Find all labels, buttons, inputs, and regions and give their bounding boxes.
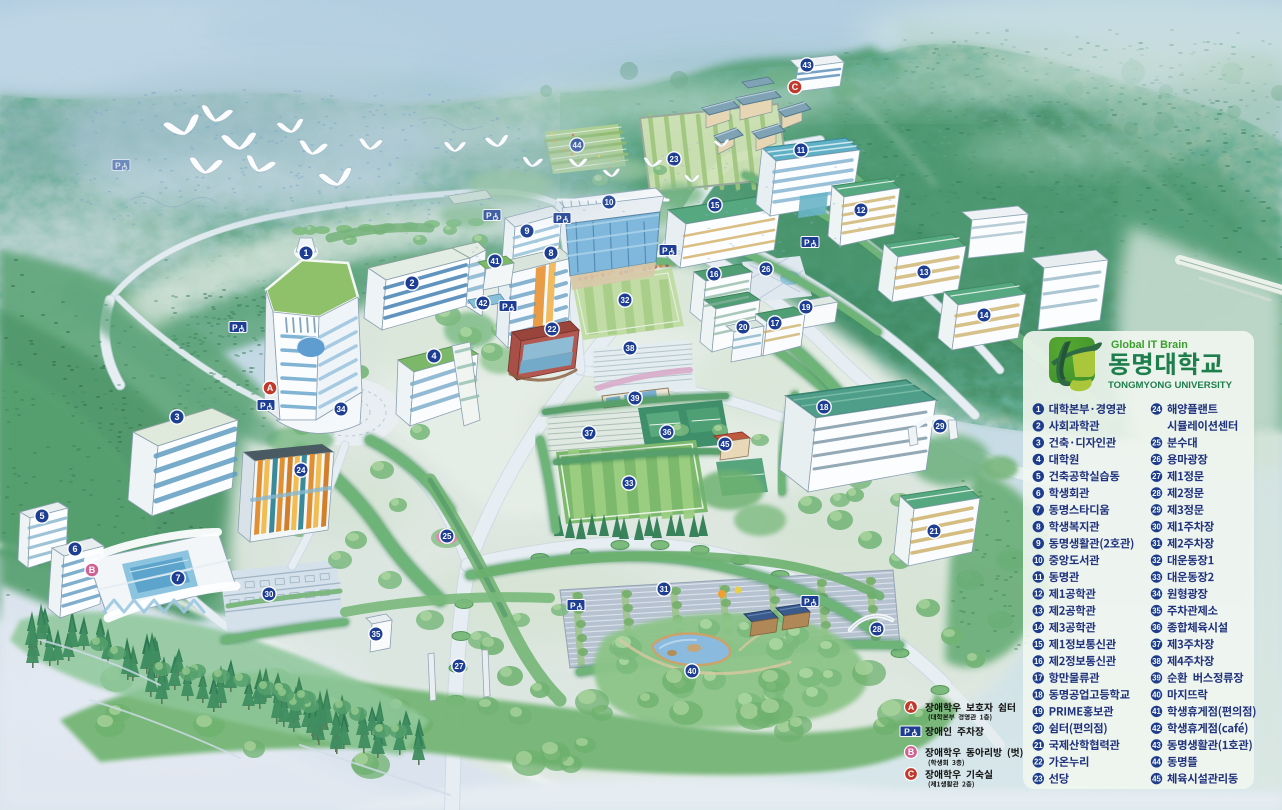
- svg-text:C: C: [908, 769, 915, 779]
- svg-text:P: P: [570, 600, 576, 610]
- svg-text:P: P: [502, 301, 508, 311]
- svg-text:8: 8: [548, 248, 553, 258]
- svg-text:C: C: [792, 82, 799, 92]
- svg-text:P: P: [556, 213, 562, 223]
- svg-text:P: P: [804, 596, 810, 606]
- svg-text:40: 40: [688, 667, 697, 676]
- svg-text:18: 18: [820, 403, 829, 412]
- svg-text:26: 26: [1152, 455, 1161, 464]
- svg-text:7: 7: [1036, 505, 1041, 515]
- svg-text:2: 2: [409, 278, 414, 288]
- svg-text:39: 39: [631, 394, 640, 403]
- svg-text:2: 2: [1036, 421, 1041, 431]
- svg-text:43: 43: [1152, 741, 1161, 750]
- svg-text:29: 29: [936, 422, 945, 431]
- svg-text:P: P: [662, 245, 668, 255]
- svg-text:41: 41: [491, 257, 500, 266]
- svg-text:40: 40: [1152, 690, 1161, 699]
- svg-text:P: P: [260, 400, 266, 410]
- svg-text:11: 11: [1034, 573, 1043, 582]
- svg-text:28: 28: [873, 625, 882, 634]
- svg-text:34: 34: [337, 405, 346, 414]
- svg-text:29: 29: [1152, 506, 1161, 515]
- svg-text:43: 43: [803, 61, 812, 70]
- svg-text:3: 3: [174, 412, 179, 422]
- svg-text:5: 5: [39, 511, 44, 521]
- svg-text:14: 14: [1034, 623, 1043, 632]
- svg-text:5: 5: [1036, 471, 1041, 481]
- svg-text:12: 12: [1034, 590, 1043, 599]
- svg-text:A: A: [267, 383, 274, 393]
- svg-text:22: 22: [1034, 758, 1043, 767]
- svg-text:6: 6: [1036, 488, 1041, 498]
- svg-text:12: 12: [857, 206, 866, 215]
- svg-text:21: 21: [1034, 741, 1043, 750]
- svg-text:19: 19: [802, 303, 811, 312]
- svg-text:15: 15: [711, 201, 720, 210]
- svg-text:35: 35: [372, 630, 381, 639]
- svg-text:36: 36: [663, 428, 672, 437]
- svg-text:39: 39: [1152, 674, 1161, 683]
- svg-text:13: 13: [920, 268, 929, 277]
- svg-text:36: 36: [1152, 623, 1161, 632]
- svg-text:10: 10: [605, 198, 614, 207]
- svg-text:16: 16: [1034, 657, 1043, 666]
- svg-text:6: 6: [72, 544, 77, 554]
- svg-text:38: 38: [1152, 657, 1161, 666]
- svg-text:10: 10: [1034, 556, 1043, 565]
- svg-text:44: 44: [1152, 758, 1161, 767]
- svg-text:30: 30: [1152, 522, 1161, 531]
- svg-text:41: 41: [1152, 707, 1161, 716]
- svg-text:45: 45: [721, 440, 730, 449]
- svg-text:22: 22: [548, 325, 557, 334]
- svg-text:24: 24: [1152, 405, 1161, 414]
- svg-text:24: 24: [297, 466, 306, 475]
- svg-text:TONGMYONG UNIVERSITY: TONGMYONG UNIVERSITY: [1108, 380, 1233, 391]
- svg-text:30: 30: [265, 590, 274, 599]
- svg-text:32: 32: [621, 296, 630, 305]
- svg-text:1: 1: [303, 248, 308, 258]
- svg-text:B: B: [908, 747, 914, 757]
- svg-text:19: 19: [1034, 707, 1043, 716]
- svg-text:18: 18: [1034, 690, 1043, 699]
- svg-text:35: 35: [1152, 606, 1161, 615]
- svg-text:34: 34: [1152, 590, 1161, 599]
- svg-text:31: 31: [660, 585, 669, 594]
- svg-text:7: 7: [175, 573, 180, 583]
- svg-text:14: 14: [980, 311, 989, 320]
- svg-text:32: 32: [1152, 556, 1161, 565]
- svg-text:27: 27: [455, 662, 464, 671]
- svg-text:45: 45: [1152, 774, 1161, 783]
- svg-text:17: 17: [1034, 674, 1043, 683]
- svg-text:15: 15: [1034, 640, 1043, 649]
- svg-text:4: 4: [431, 351, 436, 361]
- svg-text:42: 42: [479, 299, 488, 308]
- svg-text:31: 31: [1152, 539, 1161, 548]
- svg-text:33: 33: [625, 479, 634, 488]
- svg-text:26: 26: [762, 265, 771, 274]
- svg-text:28: 28: [1152, 489, 1161, 498]
- svg-text:9: 9: [1036, 538, 1041, 548]
- svg-text:11: 11: [797, 146, 806, 155]
- svg-text:20: 20: [1034, 724, 1043, 733]
- svg-text:1: 1: [1036, 404, 1041, 414]
- svg-text:Global IT Brain: Global IT Brain: [1111, 339, 1188, 351]
- svg-text:8: 8: [1036, 521, 1041, 531]
- svg-text:17: 17: [771, 319, 780, 328]
- svg-text:20: 20: [739, 323, 748, 332]
- svg-text:27: 27: [1152, 472, 1161, 481]
- svg-text:33: 33: [1152, 573, 1161, 582]
- svg-text:38: 38: [626, 344, 635, 353]
- svg-text:25: 25: [1152, 438, 1161, 447]
- svg-text:23: 23: [1034, 774, 1043, 783]
- svg-text:13: 13: [1034, 606, 1043, 615]
- svg-text:A: A: [908, 702, 915, 712]
- svg-text:P: P: [804, 237, 810, 247]
- svg-text:P: P: [904, 727, 910, 737]
- svg-text:3: 3: [1036, 437, 1041, 447]
- svg-text:4: 4: [1036, 454, 1041, 464]
- svg-text:42: 42: [1152, 724, 1161, 733]
- svg-text:B: B: [89, 565, 96, 575]
- svg-text:25: 25: [443, 532, 452, 541]
- svg-text:21: 21: [930, 527, 939, 536]
- svg-text:37: 37: [585, 429, 594, 438]
- svg-text:P: P: [232, 322, 238, 332]
- svg-text:23: 23: [670, 155, 679, 164]
- svg-text:37: 37: [1152, 640, 1161, 649]
- svg-text:16: 16: [710, 270, 719, 279]
- svg-text:9: 9: [524, 226, 529, 236]
